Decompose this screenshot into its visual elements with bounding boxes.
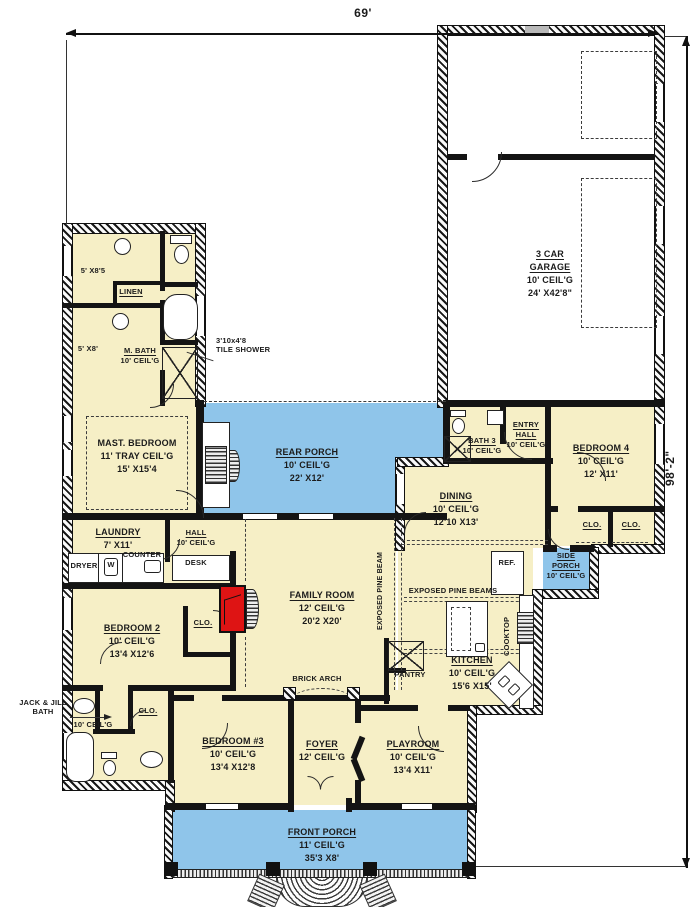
ceiling-break-line <box>245 519 249 581</box>
bathtub <box>66 732 94 782</box>
window <box>206 803 238 810</box>
room-label-rear-porch: REAR PORCH 10' CEIL'G 22' X12' <box>276 446 339 485</box>
room-label-family: FAMILY ROOM 12' CEIL'G 20'2 X20' <box>290 589 355 628</box>
room-label-front-porch: FRONT PORCH 11' CEIL'G 35'3 X8' <box>288 826 356 865</box>
pantry-label: PANTRY <box>394 670 425 679</box>
arch-column <box>284 688 295 699</box>
wall <box>183 652 236 657</box>
closet-size-label: 5' X8'5 <box>81 266 106 275</box>
wall <box>398 458 448 466</box>
floor-plan: 69' 98'-2" 3 CAR GARAGE 10' CEIL'G 24' X… <box>0 0 700 907</box>
window <box>299 513 333 520</box>
room-label-master: MAST. BEDROOM 11' TRAY CEIL'G 15' X15'4 <box>97 437 176 476</box>
porch-column <box>266 862 280 876</box>
toilet-tank <box>101 752 117 759</box>
width-dimension: 69' <box>354 6 372 20</box>
room-label-bedroom3: BEDROOM #3 10' CEIL'G 13'4 X12'8 <box>202 735 264 774</box>
dryer-label: DRYER <box>71 561 98 570</box>
wall <box>230 631 236 691</box>
exposed-pine-beams-label: EXPOSED PINE BEAMS <box>409 586 498 595</box>
dimension-line-right <box>686 36 688 868</box>
cooktop-label: COOKTOP <box>502 600 511 656</box>
wall <box>448 705 470 711</box>
island-overhang <box>451 607 471 651</box>
wall <box>468 706 476 812</box>
room-label-side-porch: SIDE PORCH 10' CEIL'G <box>547 551 586 581</box>
wall <box>443 400 664 407</box>
wall <box>438 26 447 407</box>
dim-arrow <box>682 36 690 46</box>
closet-front <box>576 542 606 545</box>
wall <box>543 590 598 598</box>
window <box>63 246 72 276</box>
wall <box>183 606 188 656</box>
room-label-entry-hall: ENTRY HALL 10' CEIL'G <box>507 420 546 450</box>
closet-label: CLO. <box>194 618 213 627</box>
garage-bay-outline <box>581 51 657 139</box>
cooktop-burners <box>517 612 534 644</box>
island-sink <box>475 643 485 652</box>
garage-divider-wall <box>498 154 655 160</box>
brick-arch-label: BRICK ARCH <box>292 674 341 683</box>
wall <box>533 590 542 714</box>
wall <box>592 545 664 553</box>
dimension-line-top <box>66 33 658 35</box>
porch-column <box>462 862 475 876</box>
room-label-playroom: PLAYROOM 10' CEIL'G 13'4 X11' <box>387 738 440 777</box>
washer-label: W <box>107 560 114 569</box>
room-label-dining: DINING 10' CEIL'G 12'10 X13' <box>433 490 479 529</box>
jj-bath-ceiling-label: 10' CEIL'G <box>74 720 113 729</box>
window <box>402 803 432 810</box>
room-label-bedroom4: BEDROOM 4 10' CEIL'G 12' X11' <box>573 442 629 481</box>
dim-arrow <box>648 29 658 37</box>
closet-label: CLO. <box>583 520 602 529</box>
desk-label: DESK <box>185 558 207 567</box>
closet-label: CLO. <box>622 520 641 529</box>
porch-hearth <box>229 450 240 482</box>
extension-line <box>476 866 686 867</box>
refrigerator-label: REF. <box>498 558 515 567</box>
porch-open-edge <box>204 401 446 404</box>
wall <box>63 583 235 589</box>
tile-shower-callout: 3'10x4'8 TILE SHOWER <box>216 336 270 354</box>
wall <box>288 701 294 803</box>
room-label-hall: HALL 10' CEIL'G <box>177 528 216 548</box>
cabinet-divider <box>98 553 99 583</box>
window <box>396 474 405 504</box>
room-label-kitchen: KITCHEN 10' CEIL'G 15'6 X15' <box>449 654 495 693</box>
leader-line <box>70 717 108 718</box>
window <box>63 450 72 476</box>
wall <box>63 224 205 233</box>
arch-column <box>348 688 359 699</box>
toilet-bowl <box>452 418 465 434</box>
ceiling-break-line <box>245 637 249 687</box>
sink <box>112 313 129 330</box>
closet-label: CLO. <box>139 706 158 715</box>
sink <box>73 698 95 714</box>
wall <box>358 705 418 711</box>
garage-divider-wall <box>447 154 467 160</box>
counter-label: COUNTER <box>123 550 161 559</box>
wall <box>113 281 117 307</box>
room-label-laundry: LAUNDRY 7' X11' <box>95 526 140 552</box>
exposed-pine-beam-label: EXPOSED PINE BEAM <box>377 538 384 630</box>
wall <box>63 781 174 790</box>
wall <box>160 282 198 287</box>
linen-label: LINEN <box>119 287 143 296</box>
window <box>63 598 72 630</box>
porch-column <box>363 862 377 876</box>
porch-firebox <box>205 446 227 484</box>
closet-front <box>612 542 648 545</box>
wall <box>548 506 558 512</box>
laundry-sink <box>144 560 161 573</box>
porch-column <box>165 862 178 876</box>
wall <box>128 685 236 691</box>
extension-line <box>66 40 67 224</box>
entry-bay-wall <box>346 798 352 812</box>
garage-bay-outline <box>581 178 657 328</box>
wall <box>545 404 551 548</box>
jack-and-jill-callout: JACK & JILL BATH <box>12 698 74 716</box>
room-label-bath3: BATH 3 10' CEIL'G <box>463 436 502 456</box>
toilet-tank <box>450 410 466 417</box>
toilet-tank <box>170 235 192 244</box>
pantry-shelf <box>388 641 424 671</box>
sink <box>140 751 163 768</box>
extension-line <box>664 36 686 37</box>
wall <box>230 551 236 589</box>
room-label-master-bath: M. BATH 10' CEIL'G <box>121 346 160 366</box>
toilet-bowl <box>174 245 189 264</box>
front-steps <box>276 878 368 907</box>
sink <box>487 410 504 425</box>
wall <box>168 695 194 701</box>
dim-arrow <box>66 29 76 37</box>
room-label-foyer: FOYER 12' CEIL'G <box>299 738 345 764</box>
wall <box>93 729 135 734</box>
hearth <box>246 589 259 629</box>
wall <box>578 506 664 512</box>
leader-arrow <box>104 714 112 720</box>
height-dimension: 98'-2" <box>663 416 677 486</box>
pine-beam-line <box>402 540 548 545</box>
wall <box>160 340 198 345</box>
porch-railing <box>172 869 468 878</box>
window <box>63 416 72 442</box>
sink <box>114 238 131 255</box>
toilet-bowl <box>103 760 116 776</box>
door-swing-arc <box>442 122 502 182</box>
bathtub <box>163 294 198 340</box>
entry-bay-wall <box>288 798 294 812</box>
wall <box>168 691 174 783</box>
room-label-bedroom2: BEDROOM 2 10' CEIL'G 13'4 X12'6 <box>104 622 160 661</box>
closet-size-label: 5' X8' <box>78 344 98 353</box>
wall <box>355 780 361 803</box>
wall <box>113 281 163 285</box>
room-label-garage: 3 CAR GARAGE 10' CEIL'G 24' X42'8" <box>525 248 575 300</box>
